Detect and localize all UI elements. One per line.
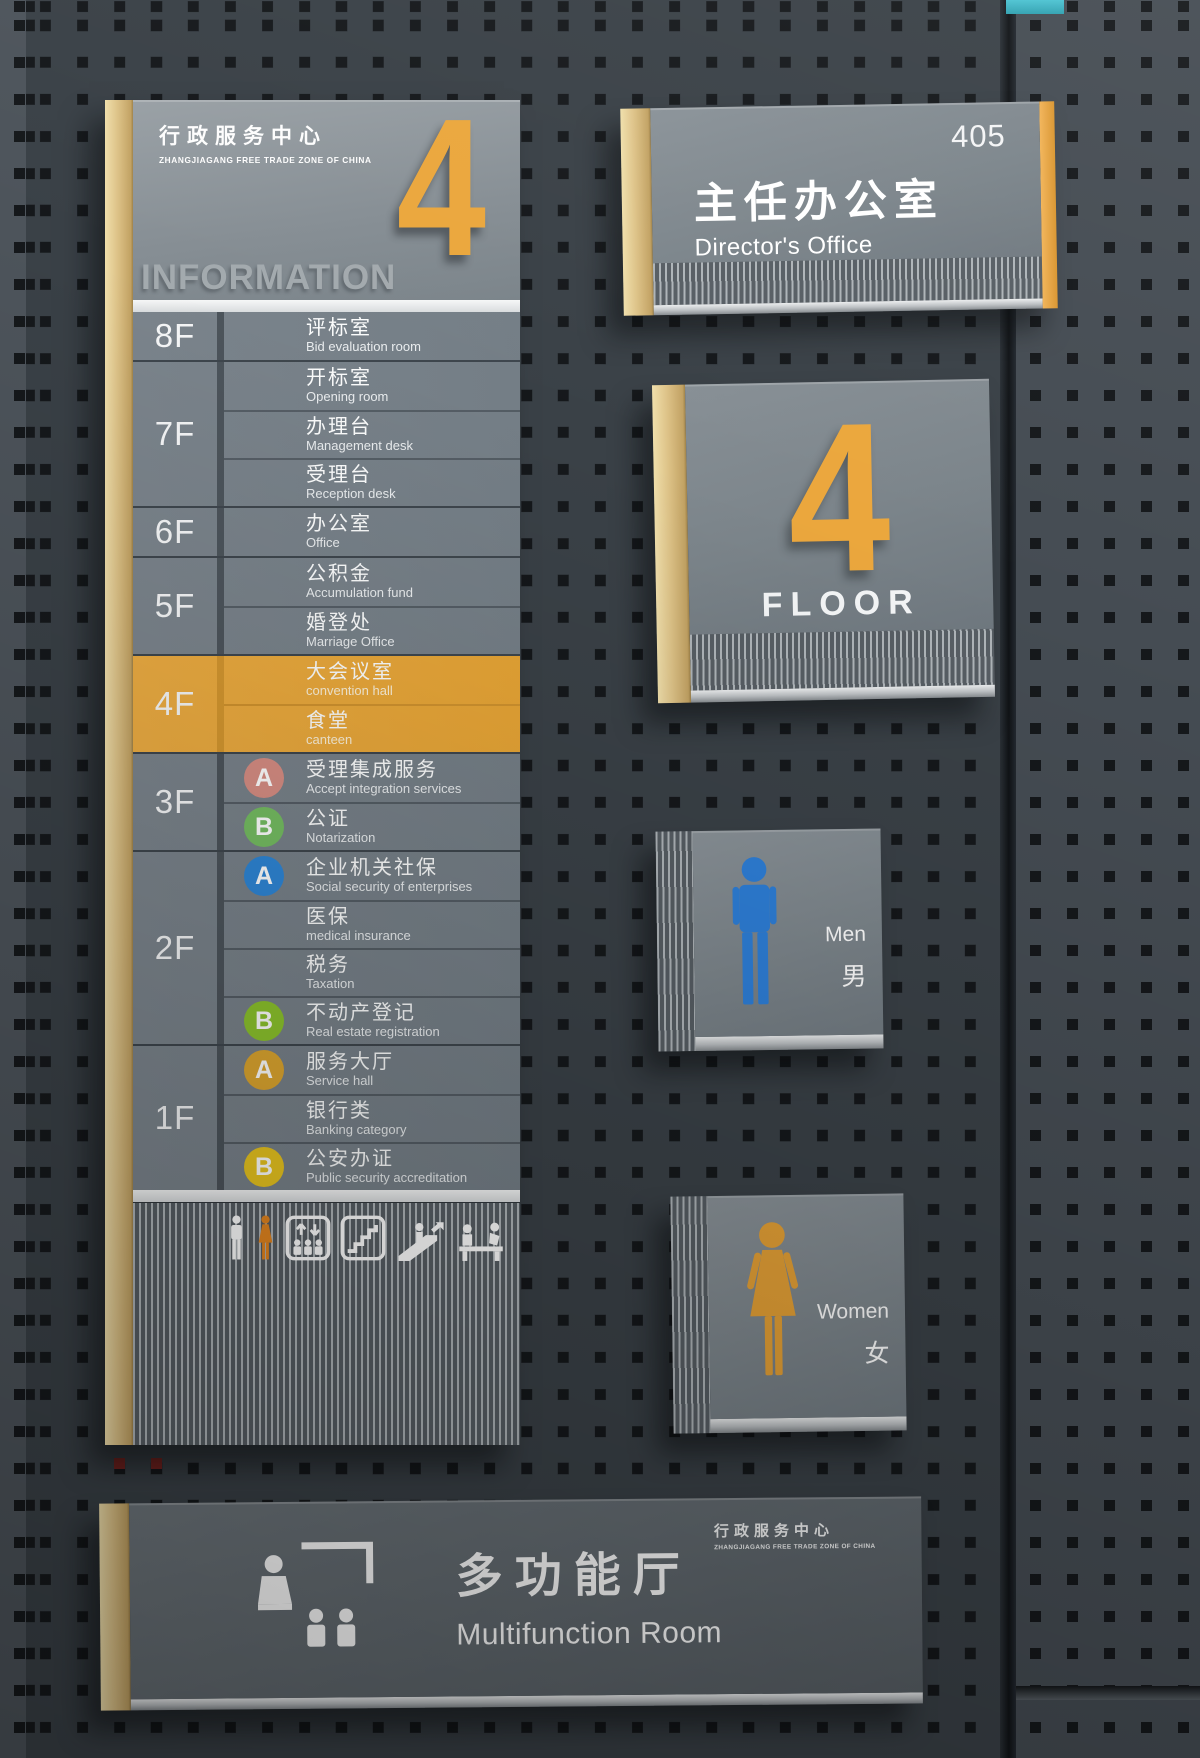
multifunction-title-en: Multifunction Room: [456, 1616, 722, 1652]
badge-spacer: [244, 562, 284, 602]
silver-edge: [695, 1034, 883, 1051]
room-name-en: Office: [306, 536, 372, 551]
floor-group-3f: 3FA受理集成服务Accept integration servicesB公证N…: [133, 752, 520, 850]
presentation-icon: [249, 1537, 378, 1654]
room-name-cn: 受理集成服务: [306, 760, 461, 781]
brand-name-cn: 行政服务中心: [714, 1519, 876, 1541]
zone-badge-b: B: [244, 1147, 284, 1187]
signage-wall-photo: 行政服务中心 ZHANGJIAGANG FREE TRADE ZONE OF C…: [0, 0, 1200, 1758]
badge-spacer: [244, 709, 284, 749]
floor-label-4f: 4F: [133, 656, 217, 752]
room-name-cn: 公积金: [306, 564, 413, 585]
men-figure-icon: [227, 1215, 246, 1261]
directory-row: B公安办证Public security accreditation: [224, 1142, 520, 1190]
striped-band: [670, 1196, 710, 1433]
room-name-en: Marriage Office: [306, 635, 395, 650]
column-divider: [217, 1046, 224, 1190]
brand-name-en: ZHANGJIAGANG FREE TRADE ZONE OF CHINA: [159, 155, 372, 165]
room-name-en: Social security of enterprises: [306, 880, 472, 895]
floor-label-1f: 1F: [133, 1046, 217, 1190]
column-divider: [217, 558, 224, 654]
room-name-en: Accumulation fund: [306, 586, 413, 601]
floor-group-2f: 2FA企业机关社保Social security of enterprises医…: [133, 850, 520, 1044]
floor-label-8f: 8F: [133, 312, 217, 360]
room-name-en: Opening room: [306, 390, 388, 405]
brand-name-en: ZHANGJIAGANG FREE TRADE ZONE OF CHINA: [714, 1543, 875, 1551]
zone-badge-a: A: [244, 758, 284, 798]
floor-group-8f: 8F评标室Bid evaluation room: [133, 312, 520, 360]
silver-edge: [710, 1416, 906, 1433]
badge-spacer: [244, 905, 284, 945]
directory-row: 评标室Bid evaluation room: [224, 312, 520, 360]
room-name-en: medical insurance: [306, 929, 411, 944]
column-divider: [217, 312, 224, 360]
divider-bar: [133, 1190, 520, 1202]
floor-group-1f: 1FA服务大厅Service hall银行类Banking categoryB公…: [133, 1044, 520, 1190]
room-name-cn: 服务大厅: [306, 1052, 394, 1073]
directory-row: B公证Notarization: [224, 802, 520, 850]
room-name-en: Real estate registration: [306, 1025, 440, 1040]
wood-trim-strip: [105, 100, 133, 1445]
escalator-icon: [395, 1219, 447, 1261]
wood-trim-strip: [620, 108, 654, 315]
elevator-icon: [285, 1215, 331, 1261]
wall-seam-horizontal: [1016, 1686, 1200, 1700]
brand-logo: 行政服务中心 ZHANGJIAGANG FREE TRADE ZONE OF C…: [714, 1519, 876, 1551]
zone-badge-b: B: [244, 1001, 284, 1041]
directory-row: A受理集成服务Accept integration services: [224, 754, 520, 802]
cyan-wall-sliver: [1006, 0, 1064, 14]
room-name-cn: 婚登处: [306, 613, 395, 634]
striped-band: [653, 256, 1043, 305]
directors-office-sign: 405 主任办公室 Director's Office: [620, 101, 1058, 316]
men-label-cn: 男: [825, 957, 866, 994]
wood-trim-strip: [99, 1503, 131, 1710]
zone-badge-a: A: [244, 1050, 284, 1090]
floor-group-5f: 5F公积金Accumulation fund婚登处Marriage Office: [133, 556, 520, 654]
floor-label-7f: 7F: [133, 362, 217, 506]
women-label-cn: 女: [817, 1334, 889, 1371]
column-divider: [217, 852, 224, 1044]
room-name-cn: 办公室: [306, 514, 372, 535]
directory-row: 办公室Office: [224, 508, 520, 556]
directory-row: 大会议室convention hall: [224, 656, 520, 704]
directory-row: 开标室Opening room: [224, 362, 520, 410]
room-name-cn: 开标室: [306, 368, 388, 389]
directory-rows: 8F评标室Bid evaluation room7F开标室Opening roo…: [133, 312, 520, 1190]
room-name-en: Banking category: [306, 1123, 406, 1138]
badge-spacer: [244, 415, 284, 455]
room-name-cn: 评标室: [306, 318, 421, 339]
wall-panel-left-edge: [0, 0, 26, 1758]
directory-row: 办理台Management desk: [224, 410, 520, 458]
directory-row: 医保medical insurance: [224, 900, 520, 948]
directory-row: 受理台Reception desk: [224, 458, 520, 506]
room-name-en: Accept integration services: [306, 782, 461, 797]
floor-label-6f: 6F: [133, 508, 217, 556]
office-title-cn: 主任办公室: [693, 165, 944, 231]
floor-label-5f: 5F: [133, 558, 217, 654]
floor-number-sign: 4 FLOOR: [652, 379, 995, 703]
floor-label-2f: 2F: [133, 852, 217, 1044]
room-name-en: Notarization: [306, 831, 375, 846]
room-name-en: Service hall: [306, 1074, 394, 1089]
room-name-en: convention hall: [306, 684, 394, 699]
zone-badge-b: B: [244, 807, 284, 847]
women-label-en: Women: [817, 1300, 889, 1325]
information-heading: INFORMATION: [141, 258, 396, 298]
room-name-en: Taxation: [306, 977, 354, 992]
room-name-en: canteen: [306, 733, 352, 748]
directory-row: A企业机关社保Social security of enterprises: [224, 852, 520, 900]
badge-spacer: [244, 660, 284, 700]
floor-group-7f: 7F开标室Opening room办理台Management desk受理台Re…: [133, 360, 520, 506]
room-name-cn: 银行类: [306, 1101, 406, 1122]
service-counter-icon: [456, 1219, 506, 1261]
column-divider: [217, 656, 224, 752]
directory-row: 婚登处Marriage Office: [224, 606, 520, 654]
badge-spacer: [244, 1099, 284, 1139]
directory-floor-number: 4: [397, 90, 486, 286]
directory-striped-footer: [133, 1202, 520, 1445]
multifunction-title-cn: 多功能厅: [455, 1535, 721, 1606]
room-name-cn: 大会议室: [306, 662, 394, 683]
room-name-en: Bid evaluation room: [306, 340, 421, 355]
men-pictogram-icon: [725, 856, 785, 1009]
red-wall-dot: [114, 1458, 125, 1469]
women-restroom-sign: Women 女: [670, 1193, 906, 1433]
office-title-en: Director's Office: [694, 230, 944, 262]
brand-logo: 行政服务中心 ZHANGJIAGANG FREE TRADE ZONE OF C…: [159, 120, 372, 165]
floor-number: 4: [787, 399, 892, 596]
room-name-en: Reception desk: [306, 487, 396, 502]
directory-row: B不动产登记Real estate registration: [224, 996, 520, 1044]
room-name-cn: 税务: [306, 955, 354, 976]
room-name-cn: 办理台: [306, 417, 413, 438]
floor-group-4f: 4F大会议室convention hall食堂canteen: [133, 654, 520, 752]
striped-band: [655, 831, 695, 1051]
badge-spacer: [244, 512, 284, 552]
badge-spacer: [244, 366, 284, 406]
floor-group-6f: 6F办公室Office: [133, 506, 520, 556]
room-name-cn: 不动产登记: [306, 1003, 440, 1024]
directory-header: 行政服务中心 ZHANGJIAGANG FREE TRADE ZONE OF C…: [133, 100, 520, 300]
men-label-en: Men: [825, 923, 866, 948]
directory-sign: 行政服务中心 ZHANGJIAGANG FREE TRADE ZONE OF C…: [105, 100, 520, 1445]
room-name-cn: 公安办证: [306, 1149, 467, 1170]
stairs-icon: [340, 1215, 386, 1261]
room-name-cn: 企业机关社保: [306, 858, 472, 879]
zone-badge-a: A: [244, 856, 284, 896]
women-pictogram-icon: [740, 1221, 806, 1380]
column-divider: [217, 754, 224, 850]
room-name-cn: 公证: [306, 809, 375, 830]
room-name-cn: 医保: [306, 907, 411, 928]
column-divider: [217, 362, 224, 506]
room-name-cn: 受理台: [306, 465, 396, 486]
room-name-en: Management desk: [306, 439, 413, 454]
room-name-cn: 食堂: [306, 711, 352, 732]
badge-spacer: [244, 316, 284, 356]
striped-band: [690, 629, 995, 691]
floor-label-3f: 3F: [133, 754, 217, 850]
red-wall-dot: [151, 1458, 162, 1469]
multifunction-room-sign: 行政服务中心 ZHANGJIAGANG FREE TRADE ZONE OF C…: [99, 1496, 923, 1710]
directory-row: 税务Taxation: [224, 948, 520, 996]
room-name-en: Public security accreditation: [306, 1171, 467, 1186]
men-restroom-sign: Men 男: [655, 828, 883, 1051]
room-number: 405: [951, 118, 1006, 155]
directory-row: 公积金Accumulation fund: [224, 558, 520, 606]
directory-row: 银行类Banking category: [224, 1094, 520, 1142]
brand-name-cn: 行政服务中心: [159, 120, 372, 150]
badge-spacer: [244, 611, 284, 651]
facility-icons-row: [227, 1215, 506, 1261]
directory-row: A服务大厅Service hall: [224, 1046, 520, 1094]
column-divider: [217, 508, 224, 556]
divider-bar: [133, 300, 520, 312]
badge-spacer: [244, 953, 284, 993]
women-figure-icon: [255, 1215, 276, 1261]
directory-row: 食堂canteen: [224, 704, 520, 752]
badge-spacer: [244, 463, 284, 503]
